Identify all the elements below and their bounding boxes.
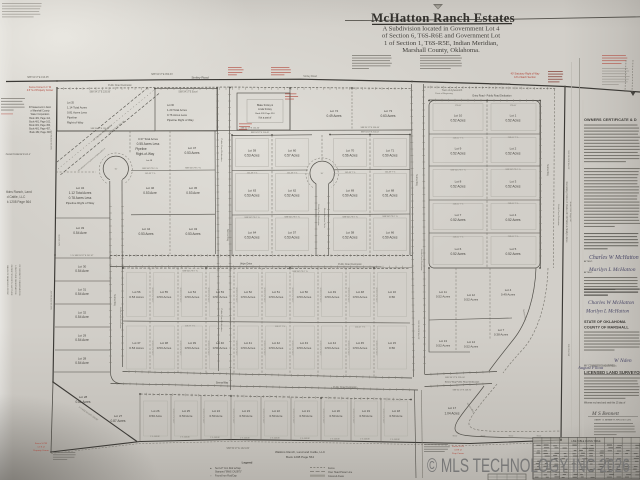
svg-text:S88°34'17"E 7 %: S88°34'17"E 7 % — [382, 216, 397, 218]
svg-text:175.00': 175.00' — [510, 105, 517, 107]
svg-text:Lot 16: Lot 16 — [388, 290, 396, 294]
svg-text:Lot 3: Lot 3 — [510, 180, 517, 184]
svg-text:Public Road Dedication: Public Road Dedication — [220, 309, 223, 333]
svg-text:S01°25'43"W 148.2': S01°25'43"W 148.2' — [172, 409, 174, 425]
svg-text:0.52 Acres: 0.52 Acres — [505, 185, 520, 189]
svg-text:S01°25'43"W 148.2': S01°25'43"W 148.2' — [352, 409, 354, 425]
svg-text:0.50 Acre: 0.50 Acre — [149, 414, 162, 418]
svg-text:0.55 Acres Less: 0.55 Acres Less — [137, 142, 160, 146]
svg-text:0.54 Acre: 0.54 Acre — [75, 269, 89, 273]
svg-text:0.52 Acres: 0.52 Acres — [505, 119, 520, 123]
svg-text:Lot 14: Lot 14 — [467, 340, 475, 344]
svg-text:Pipeline: Pipeline — [67, 116, 77, 120]
svg-text:102.48′ 7 %: 102.48′ 7 % — [345, 172, 356, 174]
svg-text:S01°25'43"W 160.3': S01°25'43"W 160.3' — [291, 288, 293, 304]
svg-text:1 % 103.36': 1 % 103.36' — [210, 437, 220, 439]
svg-text:98.12': 98.12' — [537, 436, 542, 438]
svg-text:Lot 45: Lot 45 — [356, 341, 364, 345]
svg-text:0.50: 0.50 — [389, 295, 395, 299]
svg-text:tkins Ranch, Land: tkins Ranch, Land — [6, 190, 32, 194]
svg-text:Lot 66: Lot 66 — [386, 230, 395, 234]
svg-text:Marshall County, Oklahoma.: Marshall County, Oklahoma. — [402, 47, 480, 54]
svg-text:Smiley Road: Smiley Road — [303, 75, 317, 78]
svg-text:Lot 33: Lot 33 — [76, 226, 85, 230]
svg-text:0.53 Acres: 0.53 Acres — [353, 346, 368, 350]
svg-text:0.52 Acres: 0.52 Acres — [464, 298, 479, 302]
svg-text:Lot 32: Lot 32 — [78, 311, 87, 315]
svg-text:Notary Public: Notary Public — [604, 365, 618, 368]
svg-text:0.52 Acres: 0.52 Acres — [450, 152, 465, 156]
svg-text:Public Road Dedication: Public Road Dedication — [557, 204, 560, 226]
svg-text:0.53 Acre: 0.53 Acre — [143, 191, 157, 195]
svg-text:1.1'S of: 1.1'S of — [37, 447, 45, 449]
svg-text:Lot 27: Lot 27 — [114, 414, 123, 418]
svg-text:Public Road Dedication: Public Road Dedication — [108, 84, 133, 87]
svg-text:0.38 Acres: 0.38 Acres — [494, 333, 509, 337]
svg-text:S01°25'43"W 160.3': S01°25'43"W 160.3' — [263, 341, 265, 357]
svg-text:Lot 7: Lot 7 — [455, 213, 462, 217]
svg-text:0.53 Acres: 0.53 Acres — [213, 295, 228, 299]
svg-text:GEODETIC NORTH LATITUDE: GEODETIC NORTH LATITUDE — [10, 265, 13, 296]
svg-text:0.53 Acres: 0.53 Acres — [157, 295, 172, 299]
svg-text:Right-of-Way: Right-of-Way — [67, 121, 84, 125]
svg-text:0.53 Acres: 0.53 Acres — [269, 295, 284, 299]
svg-text:S88°34'17"E 235.56': S88°34'17"E 235.56' — [89, 92, 111, 94]
svg-text:S01°25'43"W 160.3': S01°25'43"W 160.3' — [235, 288, 237, 304]
svg-text:Lot 28: Lot 28 — [78, 357, 87, 361]
svg-text:1 % 103.36': 1 % 103.36' — [270, 438, 280, 440]
svg-text:Fence 5.2'W: Fence 5.2'W — [35, 443, 48, 445]
svg-text:Lot 21: Lot 21 — [302, 409, 310, 413]
svg-text:0.53 Acres: 0.53 Acres — [353, 295, 368, 299]
svg-text:Property Corner: Property Corner — [33, 449, 49, 452]
svg-text:Book 481, Page 457,: Book 481, Page 457, — [29, 129, 51, 131]
svg-text:Public Road Dedication: Public Road Dedication — [333, 386, 358, 389]
svg-text:Covered Areas: Covered Areas — [328, 475, 345, 478]
svg-text:S88°34'17"E 7 %: S88°34'17"E 7 % — [284, 217, 299, 219]
svg-text:Lot 51: Lot 51 — [272, 290, 280, 294]
svg-text:Public Road Dedication: Public Road Dedication — [338, 263, 363, 266]
svg-text:Water Corporation: Water Corporation — [31, 113, 50, 116]
svg-text:Book 482, Page 349: Book 482, Page 349 — [30, 132, 52, 134]
svg-text:S88°34'17"E 295.00': S88°34'17"E 295.00' — [445, 377, 466, 379]
svg-text:Lot 53: Lot 53 — [216, 290, 224, 294]
svg-text:Lot 4: Lot 4 — [505, 288, 512, 292]
svg-text:0.52 Acres: 0.52 Acres — [505, 152, 520, 156]
svg-text:S88°34'17"E Excel: S88°34'17"E Excel — [178, 92, 198, 94]
svg-text:○: ○ — [210, 474, 212, 477]
svg-text:0.50: 0.50 — [389, 346, 395, 350]
svg-text:Lot 73: Lot 73 — [384, 109, 393, 113]
svg-text:0.54 Acre: 0.54 Acre — [75, 315, 89, 319]
svg-text:Lot 50: Lot 50 — [300, 290, 308, 294]
svg-text:102.48′ 7 %: 102.48′ 7 % — [247, 173, 258, 175]
svg-text:1 % 103.36': 1 % 103.36' — [330, 438, 340, 440]
svg-text:1 % 103.36': 1 % 103.36' — [240, 437, 250, 439]
svg-text:4.5' S of Property Corner: 4.5' S of Property Corner — [27, 89, 54, 92]
svg-text:S88°34'17"E 193.35': S88°34'17"E 193.35' — [27, 76, 49, 79]
svg-text:0.52 Acres: 0.52 Acres — [284, 193, 299, 197]
svg-text:COUNTY OF MARSHALL: COUNTY OF MARSHALL — [584, 326, 629, 330]
svg-text:0.50 Acre: 0.50 Acre — [389, 414, 402, 418]
svg-text:0.53 Acres: 0.53 Acres — [269, 346, 284, 350]
svg-text:Found Iron Rod/Cap: Found Iron Rod/Cap — [215, 474, 237, 477]
svg-text:0.49 Acres: 0.49 Acres — [326, 114, 341, 118]
svg-text:Not a part of: Not a part of — [259, 117, 272, 120]
svg-text:Lot 41: Lot 41 — [244, 341, 252, 345]
svg-text:S01°25'43"W 160.3': S01°25'43"W 160.3' — [319, 341, 321, 357]
svg-text:0.50 Acre: 0.50 Acre — [359, 414, 372, 418]
svg-text:OF GEODETIC OBSERVATION: OF GEODETIC OBSERVATION — [18, 264, 21, 296]
svg-text:Book 326 Page 310: Book 326 Page 310 — [255, 113, 275, 115]
svg-text:Senna Way Public Road Dedica: Senna Way Public Road Dedication — [445, 380, 480, 383]
svg-text:of Section 6, T6S-R6E and Gove: of Section 6, T6S-R6E and Government Lot — [382, 33, 500, 40]
svg-text:1 % 103.36': 1 % 103.36' — [180, 437, 190, 439]
svg-text:●: ● — [210, 467, 212, 470]
svg-text:k 1208 Page 564: k 1208 Page 564 — [7, 200, 31, 204]
svg-text:0.54 Acre: 0.54 Acre — [75, 338, 89, 342]
svg-text:Lot 44: Lot 44 — [142, 227, 151, 231]
svg-text:175.00': 175.00' — [455, 105, 462, 107]
svg-text:M S Bennett: M S Bennett — [591, 411, 619, 417]
svg-text:110.32' 7 %: 110.32' 7 % — [355, 327, 366, 329]
svg-text:1.12 Total Acres: 1.12 Total Acres — [69, 191, 92, 195]
svg-text:118.37' 7 %: 118.37' 7 % — [275, 326, 286, 328]
svg-text:LONGITUDE OBSERVATION: LONGITUDE OBSERVATION — [14, 266, 17, 295]
svg-text:S01°25'43"W 160.3': S01°25'43"W 160.3' — [235, 341, 237, 357]
svg-text:S01°25'43"W 864.21': S01°25'43"W 864.21' — [417, 320, 419, 340]
svg-text:Remaining Portion of Charles W: Remaining Portion of Charles W. McHatton… — [565, 182, 568, 244]
svg-text:0.50 Acre: 0.50 Acre — [179, 414, 192, 418]
svg-text:102.48' 7 %: 102.48' 7 % — [145, 173, 156, 175]
svg-text:1 % S88°34'17"E 207.07': 1 % S88°34'17"E 207.07' — [70, 255, 94, 257]
svg-text:Lot 30: Lot 30 — [78, 265, 87, 269]
svg-text:Lot 74: Lot 74 — [330, 109, 339, 113]
svg-text:Lot 43: Lot 43 — [189, 227, 198, 231]
svg-text:0.53 Acre: 0.53 Acre — [186, 191, 200, 195]
svg-text:Senna Way: Senna Way — [113, 294, 115, 307]
svg-text:Lot 20: Lot 20 — [332, 409, 340, 413]
svg-text:0.52 Acres: 0.52 Acres — [464, 345, 479, 349]
svg-text:Watkins Ranch, Land and Cattle: Watkins Ranch, Land and Cattle, LLC — [275, 450, 326, 454]
svg-text:ATTEST:: ATTEST: — [584, 271, 593, 274]
svg-text:Lot 46: Lot 46 — [146, 186, 155, 190]
svg-text:0.53 Acres: 0.53 Acres — [284, 235, 299, 239]
svg-text:1 of Section 1, T6S-R5E, India: 1 of Section 1, T6S-R5E, Indian Meridian… — [384, 40, 498, 47]
svg-text:N01°25'43"E: N01°25'43"E — [59, 234, 61, 246]
svg-text:Senna Way: Senna Way — [522, 309, 526, 321]
svg-text:S88°34'17"E 7 %: S88°34'17"E 7 % — [182, 271, 197, 273]
svg-text:Lot 39: Lot 39 — [188, 341, 196, 345]
svg-text:0.52 Acres: 0.52 Acres — [505, 218, 520, 222]
svg-text:0.50 Acre: 0.50 Acre — [329, 414, 342, 418]
svg-text:0.52 Acres: 0.52 Acres — [505, 252, 520, 256]
svg-text:0.53 Acres: 0.53 Acres — [325, 295, 340, 299]
svg-text:0.76 Acres Less: 0.76 Acres Less — [167, 113, 188, 117]
svg-text:S01°25'43"W 343.07': S01°25'43"W 343.07' — [51, 290, 53, 310]
svg-text:Lot 71: Lot 71 — [386, 149, 395, 153]
svg-text:Lot 43: Lot 43 — [300, 341, 308, 345]
svg-text:1 % 103.36': 1 % 103.36' — [300, 438, 310, 440]
svg-text:1.04 Acres: 1.04 Acres — [444, 412, 459, 416]
svg-text:1 % 103.36': 1 % 103.36' — [360, 439, 370, 441]
svg-text:Lot 15: Lot 15 — [388, 341, 396, 345]
svg-text:50': 50' — [115, 169, 118, 171]
svg-text:Lot 5: Lot 5 — [510, 247, 517, 251]
svg-text:Lot 59: Lot 59 — [248, 149, 257, 153]
svg-text:0.53 Acres: 0.53 Acres — [129, 346, 144, 350]
svg-text:Public Road Dedication: Public Road Dedication — [317, 204, 320, 226]
svg-text:Lot 58: Lot 58 — [346, 230, 355, 234]
svg-text:BASIS OF BEARINGS FROM: BASIS OF BEARINGS FROM — [6, 265, 9, 294]
svg-text:0.81 Acres: 0.81 Acres — [75, 400, 90, 404]
svg-text:S88°34'17"E 950.33': S88°34'17"E 950.33' — [151, 73, 173, 76]
svg-text:Lot 60: Lot 60 — [288, 149, 297, 153]
svg-text:Lot 38: Lot 38 — [160, 341, 168, 345]
svg-text:Lot 9: Lot 9 — [455, 147, 462, 151]
svg-text:118.37' 7 %: 118.37' 7 % — [185, 326, 196, 328]
svg-text:S01°25'43"W 148.2': S01°25'43"W 148.2' — [382, 409, 384, 425]
svg-text:Senna Way: Senna Way — [466, 403, 475, 414]
svg-text:0.54 Acre: 0.54 Acre — [73, 231, 87, 235]
svg-text:Lot 8: Lot 8 — [455, 180, 462, 184]
svg-text:208.00' 7 %: 208.00' 7 % — [453, 237, 464, 239]
svg-text:Lot 4: Lot 4 — [510, 213, 517, 217]
svg-text:ATTEST:: ATTEST: — [584, 260, 593, 263]
svg-text:0.50 Acre: 0.50 Acre — [239, 414, 252, 418]
svg-text:1.20 Total Acres: 1.20 Total Acres — [167, 108, 187, 112]
svg-text:Lot 7: Lot 7 — [498, 328, 505, 332]
svg-text:0.52 Acres: 0.52 Acres — [342, 235, 357, 239]
svg-text:Lot 68: Lot 68 — [386, 188, 395, 192]
svg-text:S88°34'17"E 1321.84': S88°34'17"E 1321.84' — [226, 447, 250, 450]
svg-text:Book 481, Page 162,: Book 481, Page 162, — [29, 122, 51, 124]
svg-text:0.53 Acres: 0.53 Acres — [213, 346, 228, 350]
svg-text:Lot 1: Lot 1 — [510, 114, 517, 118]
svg-text:0.53 Acres: 0.53 Acres — [184, 151, 199, 155]
svg-text:Fence: Fence — [328, 467, 335, 470]
svg-text:0.53 Acres: 0.53 Acres — [244, 235, 259, 239]
svg-text:Senna Way: Senna Way — [216, 382, 229, 385]
svg-text:0.54 Acre: 0.54 Acre — [75, 361, 89, 365]
svg-text:0.52 Acres: 0.52 Acres — [450, 185, 465, 189]
svg-text:0.78 Acres Less: 0.78 Acres Less — [69, 196, 92, 200]
svg-text:0.50 Acre: 0.50 Acre — [209, 414, 222, 418]
svg-text:Over Head Power Line: Over Head Power Line — [328, 471, 353, 474]
svg-text:Lot 70: Lot 70 — [346, 149, 355, 153]
svg-text:Book 1208 Page 564: Book 1208 Page 564 — [286, 455, 314, 459]
svg-text:Lot 52: Lot 52 — [244, 290, 252, 294]
svg-text:Lot 44: Lot 44 — [328, 341, 336, 345]
svg-text:Lot 36: Lot 36 — [167, 104, 175, 107]
svg-text:Book 481, Page 114,: Book 481, Page 114, — [29, 118, 51, 120]
svg-text:0.57 Acres: 0.57 Acres — [284, 154, 299, 158]
svg-text:Lot 62: Lot 62 — [288, 188, 297, 192]
svg-text:S01°25'43"W 543.05': S01°25'43"W 543.05' — [51, 130, 53, 150]
svg-text:Lot 13: Lot 13 — [439, 339, 447, 343]
svg-text:Town of Aylesworth: Town of Aylesworth — [442, 89, 463, 92]
svg-text:S01°25'43"W 160.3': S01°25'43"W 160.3' — [375, 341, 377, 357]
svg-text:Lot 55: Lot 55 — [160, 290, 168, 294]
svg-text:S01°25'43"W 160.3': S01°25'43"W 160.3' — [207, 341, 209, 357]
svg-text:Lot 37: Lot 37 — [132, 341, 140, 345]
svg-text:S01°25'43"W 160.3': S01°25'43"W 160.3' — [179, 341, 181, 357]
svg-text:S88°34'17"E 7 %: S88°34'17"E 7 % — [450, 170, 465, 172]
svg-text:S88°34'17"E 150.46': S88°34'17"E 150.46' — [90, 128, 110, 130]
svg-text:OWNERS CERTIFICATE & D: OWNERS CERTIFICATE & D — [584, 118, 637, 122]
svg-text:Entry Road - Public Road Ded: Entry Road - Public Road Dedication — [473, 95, 513, 98]
svg-text:LINE TABLE CURVE TABLE: LINE TABLE CURVE TABLE — [571, 440, 601, 443]
svg-text:McHatton Ranch Estates: McHatton Ranch Estates — [371, 11, 515, 25]
svg-text:S01°25'43"W 148.2': S01°25'43"W 148.2' — [322, 409, 324, 425]
svg-text:S01°25'43"W 160.3': S01°25'43"W 160.3' — [319, 288, 321, 304]
svg-text:Lot 23: Lot 23 — [242, 409, 250, 413]
svg-text:S88°34'17"E 208.90': S88°34'17"E 208.90' — [452, 390, 472, 392]
svg-text:Lot 31: Lot 31 — [78, 288, 87, 292]
svg-text:0.53 Acres: 0.53 Acres — [297, 295, 312, 299]
svg-text:Lot 25: Lot 25 — [182, 409, 190, 413]
svg-text:S88°34'17"E 356.60': S88°34'17"E 356.60' — [360, 127, 380, 129]
svg-text:Lot 34: Lot 34 — [76, 186, 85, 190]
svg-text:Public Road Dedication: Public Road Dedication — [220, 139, 223, 163]
svg-text:Smiley Road: Smiley Road — [191, 76, 208, 80]
svg-text:0.53 Acres: 0.53 Acres — [241, 346, 256, 350]
svg-text:S01°25'43"W: S01°25'43"W — [567, 344, 569, 356]
svg-text:S88°34'17"E 660.36': S88°34'17"E 660.36' — [489, 84, 511, 86]
svg-text:0.63 Acres: 0.63 Acres — [380, 114, 395, 118]
svg-text:0.50 Acre: 0.50 Acre — [299, 414, 312, 418]
svg-text:0.56 Acres: 0.56 Acres — [342, 154, 357, 158]
svg-text:Lot 48: Lot 48 — [356, 290, 364, 294]
svg-text:0.50 Acres: 0.50 Acres — [342, 193, 357, 197]
svg-text:Lot 17: Lot 17 — [448, 406, 457, 410]
svg-text:Lot 28: Lot 28 — [79, 395, 88, 399]
svg-text:A Subdivision located in Gover: A Subdivision located in Government Lot … — [382, 26, 500, 33]
svg-text:of Marshall County: of Marshall County — [30, 110, 50, 113]
svg-text:Point of Beginning: Point of Beginning — [435, 92, 454, 95]
svg-text:0.52 Acres: 0.52 Acres — [450, 119, 465, 123]
svg-text:98.12': 98.12' — [453, 436, 458, 438]
svg-text:1.14 Total Acres: 1.14 Total Acres — [67, 106, 87, 110]
svg-text:0.53 Acres: 0.53 Acres — [185, 295, 200, 299]
svg-text:0.52 Acres: 0.52 Acres — [436, 344, 451, 348]
svg-text:STATE OF OKLAHOMA: STATE OF OKLAHOMA — [584, 320, 626, 324]
svg-text:S01°25'43"W 148.2': S01°25'43"W 148.2' — [292, 409, 294, 425]
svg-text:1/8 of Each Section: 1/8 of Each Section — [514, 76, 536, 79]
svg-text:Lot 6: Lot 6 — [455, 247, 462, 251]
svg-text:0.52 Acres: 0.52 Acres — [450, 252, 465, 256]
svg-text:OBERT G. BENNETT, RPLS NO 1471: OBERT G. BENNETT, RPLS NO 1471 — [594, 420, 632, 422]
svg-text:50': 50' — [321, 173, 324, 175]
svg-text:Lot 10: Lot 10 — [454, 114, 463, 118]
svg-text:Book 1261 Page 697: Book 1261 Page 697 — [569, 202, 571, 223]
svg-text:Pipeline Right of Way: Pipeline Right of Way — [66, 201, 95, 205]
svg-text:Blake Smiley &: Blake Smiley & — [257, 104, 273, 107]
svg-text:S88°34'17"E 7 %: S88°34'17"E 7 % — [185, 168, 201, 170]
svg-text:0.53 Acres: 0.53 Acres — [129, 295, 144, 299]
svg-text:Pipeline: Pipeline — [135, 147, 147, 151]
svg-text:0.49 Acres: 0.49 Acres — [501, 293, 516, 297]
svg-text:Senna Way: Senna Way — [226, 229, 229, 242]
svg-text:0.53 Acres: 0.53 Acres — [138, 232, 153, 236]
svg-text:0.53 Acres: 0.53 Acres — [241, 295, 256, 299]
svg-text:Pipeline Right of Way: Pipeline Right of Way — [167, 118, 194, 122]
svg-text:S01°25'43"W 148.2': S01°25'43"W 148.2' — [202, 409, 204, 425]
svg-text:0.3'E of: 0.3'E of — [454, 449, 462, 451]
svg-text:Lot 63: Lot 63 — [248, 188, 257, 192]
svg-text:0.54 Acre: 0.54 Acre — [75, 292, 89, 296]
svg-text:No abandonment plans complete: No abandonment plans complete within it — [77, 147, 106, 172]
svg-text:Velyn Drive: Velyn Drive — [240, 263, 253, 266]
svg-text:Book 481, Page 456,: Book 481, Page 456, — [29, 125, 51, 127]
svg-text:1 % 103.36': 1 % 103.36' — [150, 436, 160, 438]
svg-text:0.53 Acres: 0.53 Acres — [185, 346, 200, 350]
svg-text:Lot 49: Lot 49 — [328, 290, 336, 294]
svg-text:98.12': 98.12' — [509, 436, 514, 438]
svg-text:0.50 Acres: 0.50 Acres — [382, 154, 397, 158]
svg-text:0.53 Acres: 0.53 Acres — [157, 346, 172, 350]
svg-text:S01°25'43"W 160.3': S01°25'43"W 160.3' — [375, 288, 377, 304]
svg-text:S88°34'17"E 7 %: S88°34'17"E 7 % — [292, 271, 307, 273]
svg-text:0.51 Acres: 0.51 Acres — [382, 193, 397, 197]
svg-text:0.52 Acres: 0.52 Acres — [436, 295, 451, 299]
svg-text:S01°25'43"W 160.3': S01°25'43"W 160.3' — [347, 341, 349, 357]
svg-text:0.53 Acres: 0.53 Acres — [297, 346, 312, 350]
svg-text:S88°34'17"E 1 %: S88°34'17"E 1 % — [142, 168, 158, 170]
svg-text:S01°25'43"W 160.3': S01°25'43"W 160.3' — [207, 288, 209, 304]
svg-text:Lot 54: Lot 54 — [188, 290, 196, 294]
svg-text:S01°25'43"W 864.21': S01°25'43"W 864.21' — [567, 150, 569, 170]
svg-text:208.00' 7 %: 208.00' 7 % — [453, 204, 464, 206]
svg-text:S01°25'43"W 160.3': S01°25'43"W 160.3' — [151, 288, 153, 304]
svg-text:Lot 57: Lot 57 — [288, 230, 297, 234]
svg-text:Lot 12: Lot 12 — [467, 293, 475, 297]
svg-text:Lot 48: Lot 48 — [146, 159, 153, 162]
svg-text:Alexis Madison Circle: Alexis Madison Circle — [323, 208, 326, 229]
svg-text:Lot 24: Lot 24 — [212, 409, 220, 413]
svg-text:Marilyn L McHatton: Marilyn L McHatton — [585, 309, 630, 315]
svg-text:Witness my hand and seal this: Witness my hand and seal this 15 day of — [584, 402, 626, 405]
svg-text:S01°25'43"W 160.3': S01°25'43"W 160.3' — [179, 288, 181, 304]
svg-text:S01°25'43"W 160.3': S01°25'43"W 160.3' — [151, 341, 153, 357]
svg-text:0.37 Total Acres: 0.37 Total Acres — [138, 137, 158, 141]
svg-text:Lot 22: Lot 22 — [272, 409, 280, 413]
svg-text:Lot 29: Lot 29 — [78, 334, 87, 338]
svg-text:d Cattle, LLC: d Cattle, LLC — [7, 195, 26, 199]
svg-text:Lot 35: Lot 35 — [67, 102, 75, 105]
svg-text:Public Road Dedication: Public Road Dedication — [420, 249, 423, 271]
svg-text:S01°25'43"W 148.2': S01°25'43"W 148.2' — [262, 409, 264, 425]
svg-text:Government Lot 2: Government Lot 2 — [6, 152, 31, 156]
svg-text:Charles W McHatton: Charles W McHatton — [589, 255, 639, 261]
svg-text:Lot 45: Lot 45 — [189, 186, 198, 190]
svg-text:30' Easement in favor: 30' Easement in favor — [29, 106, 51, 109]
svg-text:Lot 56: Lot 56 — [132, 290, 140, 294]
svg-text:208.00' 7 %: 208.00' 7 % — [453, 138, 464, 140]
svg-text:1 % 103.36': 1 % 103.36' — [390, 439, 400, 441]
svg-text:0.53 Acres: 0.53 Acres — [244, 154, 259, 158]
svg-text:Senna Way: Senna Way — [546, 164, 548, 177]
svg-text:Lot 18: Lot 18 — [392, 409, 400, 413]
svg-text:0.52 Acres: 0.52 Acres — [450, 218, 465, 222]
svg-text:Lot 42: Lot 42 — [272, 341, 280, 345]
svg-text:Lot 64: Lot 64 — [248, 230, 257, 234]
svg-text:Lot 11: Lot 11 — [439, 290, 447, 294]
svg-text:Lot 69: Lot 69 — [346, 188, 355, 192]
svg-text:Legend: Legend — [242, 461, 253, 465]
svg-text:Right-of-Way: Right-of-Way — [136, 152, 155, 156]
svg-text:S01°25'43"W 160.3': S01°25'43"W 160.3' — [347, 288, 349, 304]
